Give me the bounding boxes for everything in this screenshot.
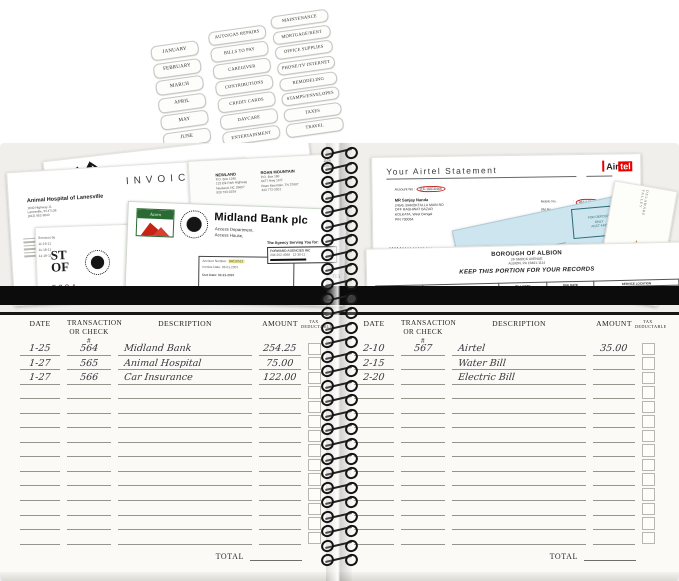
handwritten-entry: 567 <box>413 344 432 354</box>
handwritten-entry: 254.25 <box>263 344 297 354</box>
handwritten-entry: Car Insurance <box>123 373 193 383</box>
tax-deductible-checkbox[interactable] <box>308 372 321 385</box>
ledger-row <box>354 486 656 501</box>
circled-account-number: 116-10010466 <box>416 186 445 192</box>
tax-deductible-checkbox[interactable] <box>642 517 655 530</box>
handwritten-entry: 75.00 <box>266 359 294 369</box>
tax-deductible-checkbox[interactable] <box>308 401 321 414</box>
ledger-row <box>20 428 322 443</box>
ledger-row <box>354 530 656 545</box>
handwritten-entry: Animal Hospital <box>123 359 201 369</box>
total-row: TOTAL <box>20 552 322 561</box>
label-column-categories-2: MAINTENANCEMORTGAGE/RENTOFFICE SUPPLIESP… <box>270 9 345 141</box>
ledger-left-page: DATE TRANSACTIONOR CHECK # DESCRIPTION A… <box>20 314 322 561</box>
tax-deductible-checkbox[interactable] <box>642 473 655 486</box>
tax-deductible-checkbox[interactable] <box>308 488 321 501</box>
handwritten-entry: Water Bill <box>457 359 506 369</box>
handwritten-entry: Airtel <box>457 344 485 354</box>
tax-deductible-checkbox[interactable] <box>642 430 655 443</box>
ledger-row <box>354 385 656 400</box>
tax-deductible-checkbox[interactable] <box>642 372 655 385</box>
handwritten-entry: 564 <box>79 344 98 354</box>
tax-deductible-checkbox[interactable] <box>308 430 321 443</box>
ledger-row <box>20 516 322 531</box>
bank-name: Midland Bank plc <box>214 211 308 227</box>
ledger-row <box>20 399 322 414</box>
ledger-row <box>354 428 656 443</box>
state-seal-icon <box>85 250 111 276</box>
handwritten-entry: Electric Bill <box>457 373 515 383</box>
ledger-row <box>354 516 656 531</box>
ledger-row <box>20 385 322 400</box>
invoice-address: 1840 Highway 11 Lanesville, IN 47136 (81… <box>27 204 57 218</box>
ledger-row: 1-27565Animal Hospital75.00 <box>20 356 322 371</box>
label-column-categories-1: AUTO/GAS REPAIRSBILLS TO PAYCAREGIVERCON… <box>207 24 281 149</box>
ledger-header: DATE TRANSACTIONOR CHECK # DESCRIPTION A… <box>354 319 656 341</box>
airtel-logo: Air tel <box>603 160 633 171</box>
ledger-row <box>20 414 322 429</box>
tax-deductible-checkbox[interactable] <box>308 386 321 399</box>
total-line <box>584 552 636 561</box>
handwritten-entry: 2-20 <box>363 373 385 383</box>
total-row: TOTAL <box>354 552 656 561</box>
tax-deductible-checkbox[interactable] <box>308 459 321 472</box>
handwritten-entry: 566 <box>79 373 98 383</box>
tax-deductible-checkbox[interactable] <box>308 444 321 457</box>
ledger-row <box>20 530 322 545</box>
handwritten-entry: Midland Bank <box>123 344 191 354</box>
state-form-big-letters: ST OF <box>51 249 70 274</box>
utility-office-b: ROAN MOUNTAINP.O. Box 1608477 Hwy 19 ERo… <box>260 168 298 192</box>
handwritten-entry: 565 <box>79 359 98 369</box>
bank-address: Access Department, Access House, <box>215 226 254 239</box>
highlighted-account-number: 84010513 <box>228 259 244 263</box>
label-column-months: JANUARYFEBRUARYMARCHAPRILMAYJUNE <box>150 40 213 158</box>
ledger-row: 2-20Electric Bill <box>354 370 656 385</box>
tax-deductible-checkbox[interactable] <box>642 532 655 545</box>
tax-deductible-checkbox[interactable] <box>642 488 655 501</box>
tax-deductible-checkbox[interactable] <box>308 343 321 356</box>
ledger-row <box>354 501 656 516</box>
handwritten-entry: 1-27 <box>29 359 51 369</box>
airtel-title: Your Airtel Statement <box>386 165 497 177</box>
page-gutter <box>326 143 352 581</box>
label-stickers-sheet: JANUARYFEBRUARYMARCHAPRILMAYJUNE AUTO/GA… <box>148 9 339 157</box>
handwritten-entry: 122.00 <box>263 373 297 383</box>
tax-deductible-checkbox[interactable] <box>642 386 655 399</box>
tax-deductible-checkbox[interactable] <box>642 503 655 516</box>
ledger-row <box>20 443 322 458</box>
tax-deductible-checkbox[interactable] <box>642 357 655 370</box>
bill-organizer-product-photo: JANUARYFEBRUARYMARCHAPRILMAYJUNE AUTO/GA… <box>0 0 679 581</box>
tax-deductible-checkbox[interactable] <box>308 517 321 530</box>
utility-office-a: NEWLANDP.O. Box 1240123 Elk Park Highway… <box>215 171 247 194</box>
ledger-row: 2-15Water Bill <box>354 356 656 371</box>
handwritten-entry: 1-25 <box>29 344 51 354</box>
handwritten-entry: 1-27 <box>29 373 51 383</box>
ledger-row <box>354 457 656 472</box>
ledger-row <box>354 414 656 429</box>
tax-deductible-checkbox[interactable] <box>308 357 321 370</box>
bank-seal-icon <box>180 210 209 239</box>
tax-deductible-checkbox[interactable] <box>642 459 655 472</box>
ledger-row <box>354 443 656 458</box>
ledger-row: 1-25564Midland Bank254.25 <box>20 341 322 356</box>
ledger-row <box>20 486 322 501</box>
ledger-row <box>354 399 656 414</box>
expense-organizer: INVOICE Animal Hospital of Lanesville 18… <box>0 143 679 581</box>
ledger-row: 2-10567Airtel35.00 <box>354 341 656 356</box>
tax-deductible-checkbox[interactable] <box>308 415 321 428</box>
tax-deductible-checkbox[interactable] <box>642 444 655 457</box>
ledger-row: 1-27566Car Insurance122.00 <box>20 370 322 385</box>
tax-deductible-checkbox[interactable] <box>642 415 655 428</box>
airtel-account: Account No : 116-10010466 <box>395 187 446 192</box>
ledger-right-page: DATE TRANSACTIONOR CHECK # DESCRIPTION A… <box>354 314 656 561</box>
tax-deductible-checkbox[interactable] <box>308 473 321 486</box>
total-line <box>250 552 302 561</box>
ledger-row <box>20 457 322 472</box>
handwritten-entry: 2-10 <box>363 344 385 354</box>
handwritten-entry: 35.00 <box>600 344 628 354</box>
tax-deductible-checkbox[interactable] <box>642 401 655 414</box>
ledger-header: DATE TRANSACTIONOR CHECK # DESCRIPTION A… <box>20 319 322 341</box>
airtel-customer-address: MR Sanjay Nanda245/6, BAROKTALLA MAIN RD… <box>395 197 444 223</box>
ledger-row <box>354 472 656 487</box>
ledger-row <box>20 501 322 516</box>
tax-deductible-checkbox[interactable] <box>308 503 321 516</box>
tax-deductible-checkbox[interactable] <box>308 532 321 545</box>
ledger-row <box>20 472 322 487</box>
handwritten-entry: 2-15 <box>363 359 385 369</box>
tax-deductible-checkbox[interactable] <box>642 343 655 356</box>
invoice-company: Animal Hospital of Lanesville <box>27 194 104 205</box>
acorn-logo: Acorn <box>136 208 175 237</box>
